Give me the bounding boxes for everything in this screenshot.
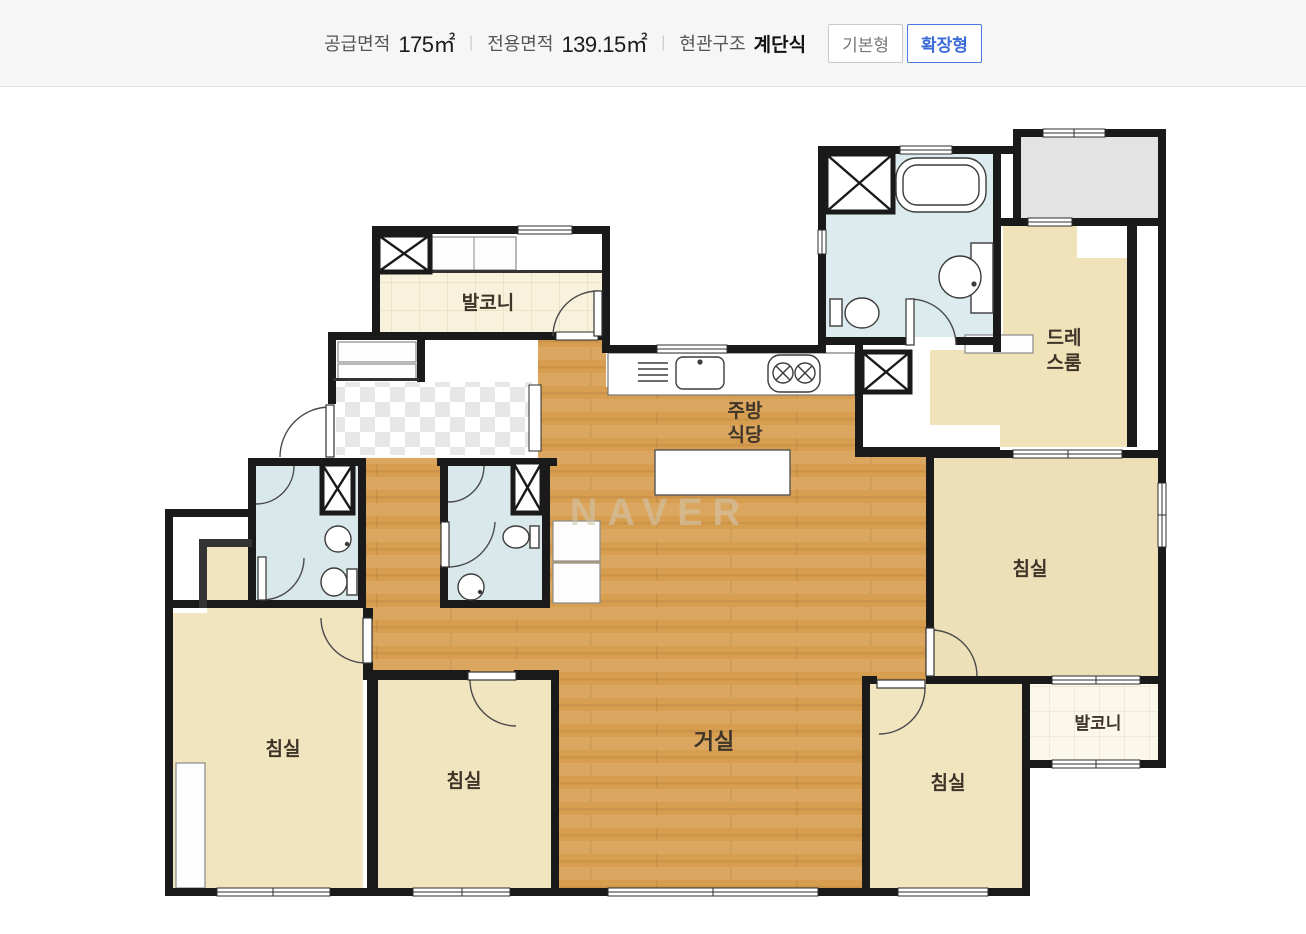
duct-box-icon <box>513 462 542 513</box>
window <box>818 230 826 254</box>
window <box>1013 450 1122 458</box>
summary-bar: 공급면적 175㎡ | 전용면적 139.15㎡ | 현관구조 계단식 기본형 … <box>0 0 1306 87</box>
label-kitchen-line1: 주방 <box>728 400 763 422</box>
floor-plan-area: NAVER 발코니 주방 식당 드레 스룸 침실 침실 침실 침실 거실 발코니 <box>0 87 1306 934</box>
window <box>217 888 330 896</box>
door-threshold <box>556 332 598 340</box>
separator: | <box>469 34 473 52</box>
window <box>518 226 572 234</box>
label-kitchen-line2: 식당 <box>728 424 763 446</box>
window <box>657 345 727 353</box>
closet <box>338 364 416 379</box>
closet <box>553 563 600 603</box>
duct-room <box>1021 137 1158 218</box>
supply-area-label: 공급면적 <box>324 30 390 56</box>
entrance-structure-value: 계단식 <box>754 30 806 57</box>
exclusive-area-value: 139.15㎡ <box>561 27 647 59</box>
window <box>900 146 952 154</box>
floor-plan-svg: NAVER 발코니 주방 식당 드레 스룸 침실 침실 침실 침실 거실 발코니 <box>0 87 1306 934</box>
duct-box-icon <box>378 235 430 272</box>
stove-icon <box>768 355 820 392</box>
label-balcony-top: 발코니 <box>462 292 514 314</box>
corridor-floor <box>440 600 552 680</box>
toilet-icon <box>321 568 357 596</box>
window <box>413 888 510 896</box>
exclusive-area-label: 전용면적 <box>487 30 553 56</box>
label-bedroom-right: 침실 <box>1013 558 1048 580</box>
label-balcony-right: 발코니 <box>1075 714 1122 733</box>
entrance-floor <box>336 382 532 455</box>
window <box>1028 218 1072 226</box>
door-threshold <box>529 385 541 451</box>
supply-area-value: 175㎡ <box>398 27 455 59</box>
kitchen-island <box>655 450 790 495</box>
corridor-floor <box>366 458 443 670</box>
plan-type-toggle: 기본형 확장형 <box>828 24 982 63</box>
closet <box>338 342 416 362</box>
window <box>1052 760 1140 768</box>
window <box>1158 483 1166 547</box>
window <box>898 888 988 896</box>
separator: | <box>661 34 665 52</box>
sink-icon <box>458 574 484 600</box>
label-bedroom-mid: 침실 <box>447 770 482 792</box>
label-living-room: 거실 <box>694 729 734 754</box>
kitchen-sink-icon <box>676 357 724 389</box>
duct-box-icon <box>862 352 910 392</box>
window <box>1052 676 1140 684</box>
label-dressroom-line1: 드레 <box>1047 327 1082 349</box>
entry-door <box>280 405 334 457</box>
hall-floor <box>538 336 606 459</box>
toilet-icon <box>830 298 879 328</box>
toilet-icon <box>503 526 539 548</box>
basic-type-button[interactable]: 기본형 <box>828 24 903 63</box>
naver-watermark: NAVER <box>570 492 750 534</box>
label-bedroom-bottom-right: 침실 <box>931 772 966 794</box>
duct-box-icon <box>826 154 893 212</box>
duct-box-icon <box>322 464 353 513</box>
extended-type-button[interactable]: 확장형 <box>907 24 982 63</box>
closet <box>176 763 205 888</box>
label-dressroom-line2: 스룸 <box>1047 352 1082 374</box>
bathtub-icon <box>896 158 986 212</box>
entrance-structure-label: 현관구조 <box>679 30 745 56</box>
label-bedroom-left: 침실 <box>266 738 301 760</box>
window <box>608 888 818 896</box>
window <box>1043 129 1105 137</box>
summary-bar-content: 공급면적 175㎡ | 전용면적 139.15㎡ | 현관구조 계단식 기본형 … <box>324 24 982 63</box>
sink-icon <box>325 526 351 552</box>
